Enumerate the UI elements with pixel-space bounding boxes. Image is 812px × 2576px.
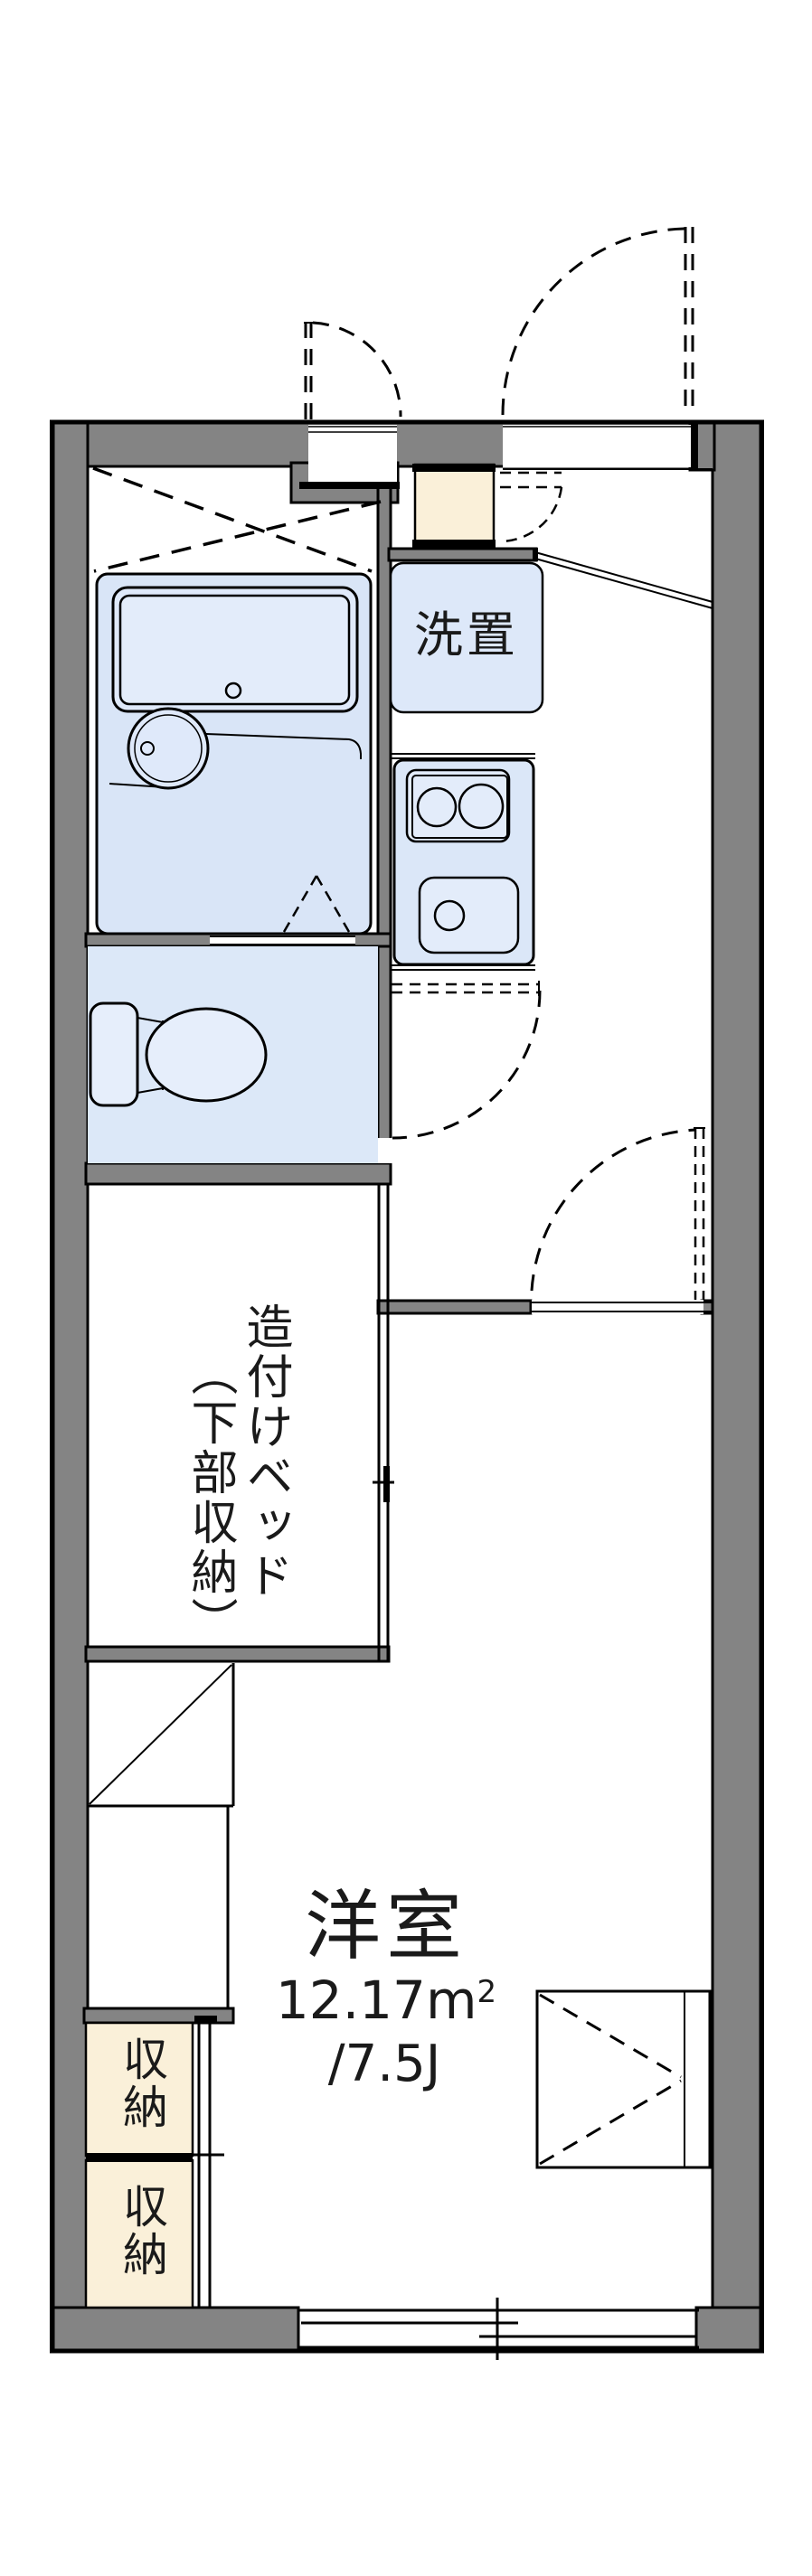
bed-wall-post — [383, 1466, 390, 1502]
shoe-cabinet — [415, 465, 494, 548]
floor-plan-canvas: 洗置 造付けベッド （下部収納） 収納 収納 洋室 12.17m2 /7.5J — [0, 0, 812, 2576]
room-area-value: 12.17m — [276, 1970, 477, 2031]
vestibule-alcove — [308, 425, 397, 482]
toilet-tank — [90, 1003, 137, 1105]
bed-label-primary: 造付けベッド — [238, 1302, 292, 1601]
bottom-wall-right — [696, 2308, 760, 2351]
center-wall — [378, 466, 391, 1166]
bathtub-drain — [226, 683, 241, 698]
sink-drain — [435, 901, 464, 930]
closet-label-upper: 収納 — [116, 2035, 168, 2131]
right-wall — [713, 422, 760, 2351]
stove-burner-left — [418, 788, 456, 826]
room-name-label: 洋室 — [305, 1882, 467, 1970]
room-area-label: 12.17m2 — [276, 1970, 496, 2031]
hall-room-wall — [378, 1301, 531, 1313]
closet-top-wall-cap — [194, 2016, 217, 2024]
entrance-opening — [503, 425, 691, 467]
closet-label-lower: 収納 — [116, 2183, 168, 2279]
left-wall — [53, 422, 88, 2351]
vestibule-alcove-sill — [299, 482, 400, 489]
entry-stub-wall — [389, 549, 536, 560]
bottom-wall-left — [53, 2308, 298, 2351]
washer-label: 洗置 — [414, 606, 519, 663]
bed-bottom-wall — [86, 1647, 389, 1661]
room-tatami-label: /7.5J — [328, 2035, 440, 2093]
entrance-jamb — [691, 422, 698, 469]
room-area-sup: 2 — [477, 1974, 496, 2010]
toilet-bottom-wall — [86, 1163, 391, 1184]
toilet-bowl — [146, 1009, 266, 1101]
shoe-cabinet-top-band — [412, 464, 496, 472]
closet-divider — [86, 2153, 193, 2162]
bed-label-secondary: （下部収納） — [183, 1349, 237, 1647]
floor-plan: 洗置 造付けベッド （下部収納） 収納 収納 洋室 12.17m2 /7.5J — [0, 0, 812, 2576]
shoe-cabinet-bottom-band — [412, 540, 496, 548]
stove-burner-right — [459, 785, 503, 828]
